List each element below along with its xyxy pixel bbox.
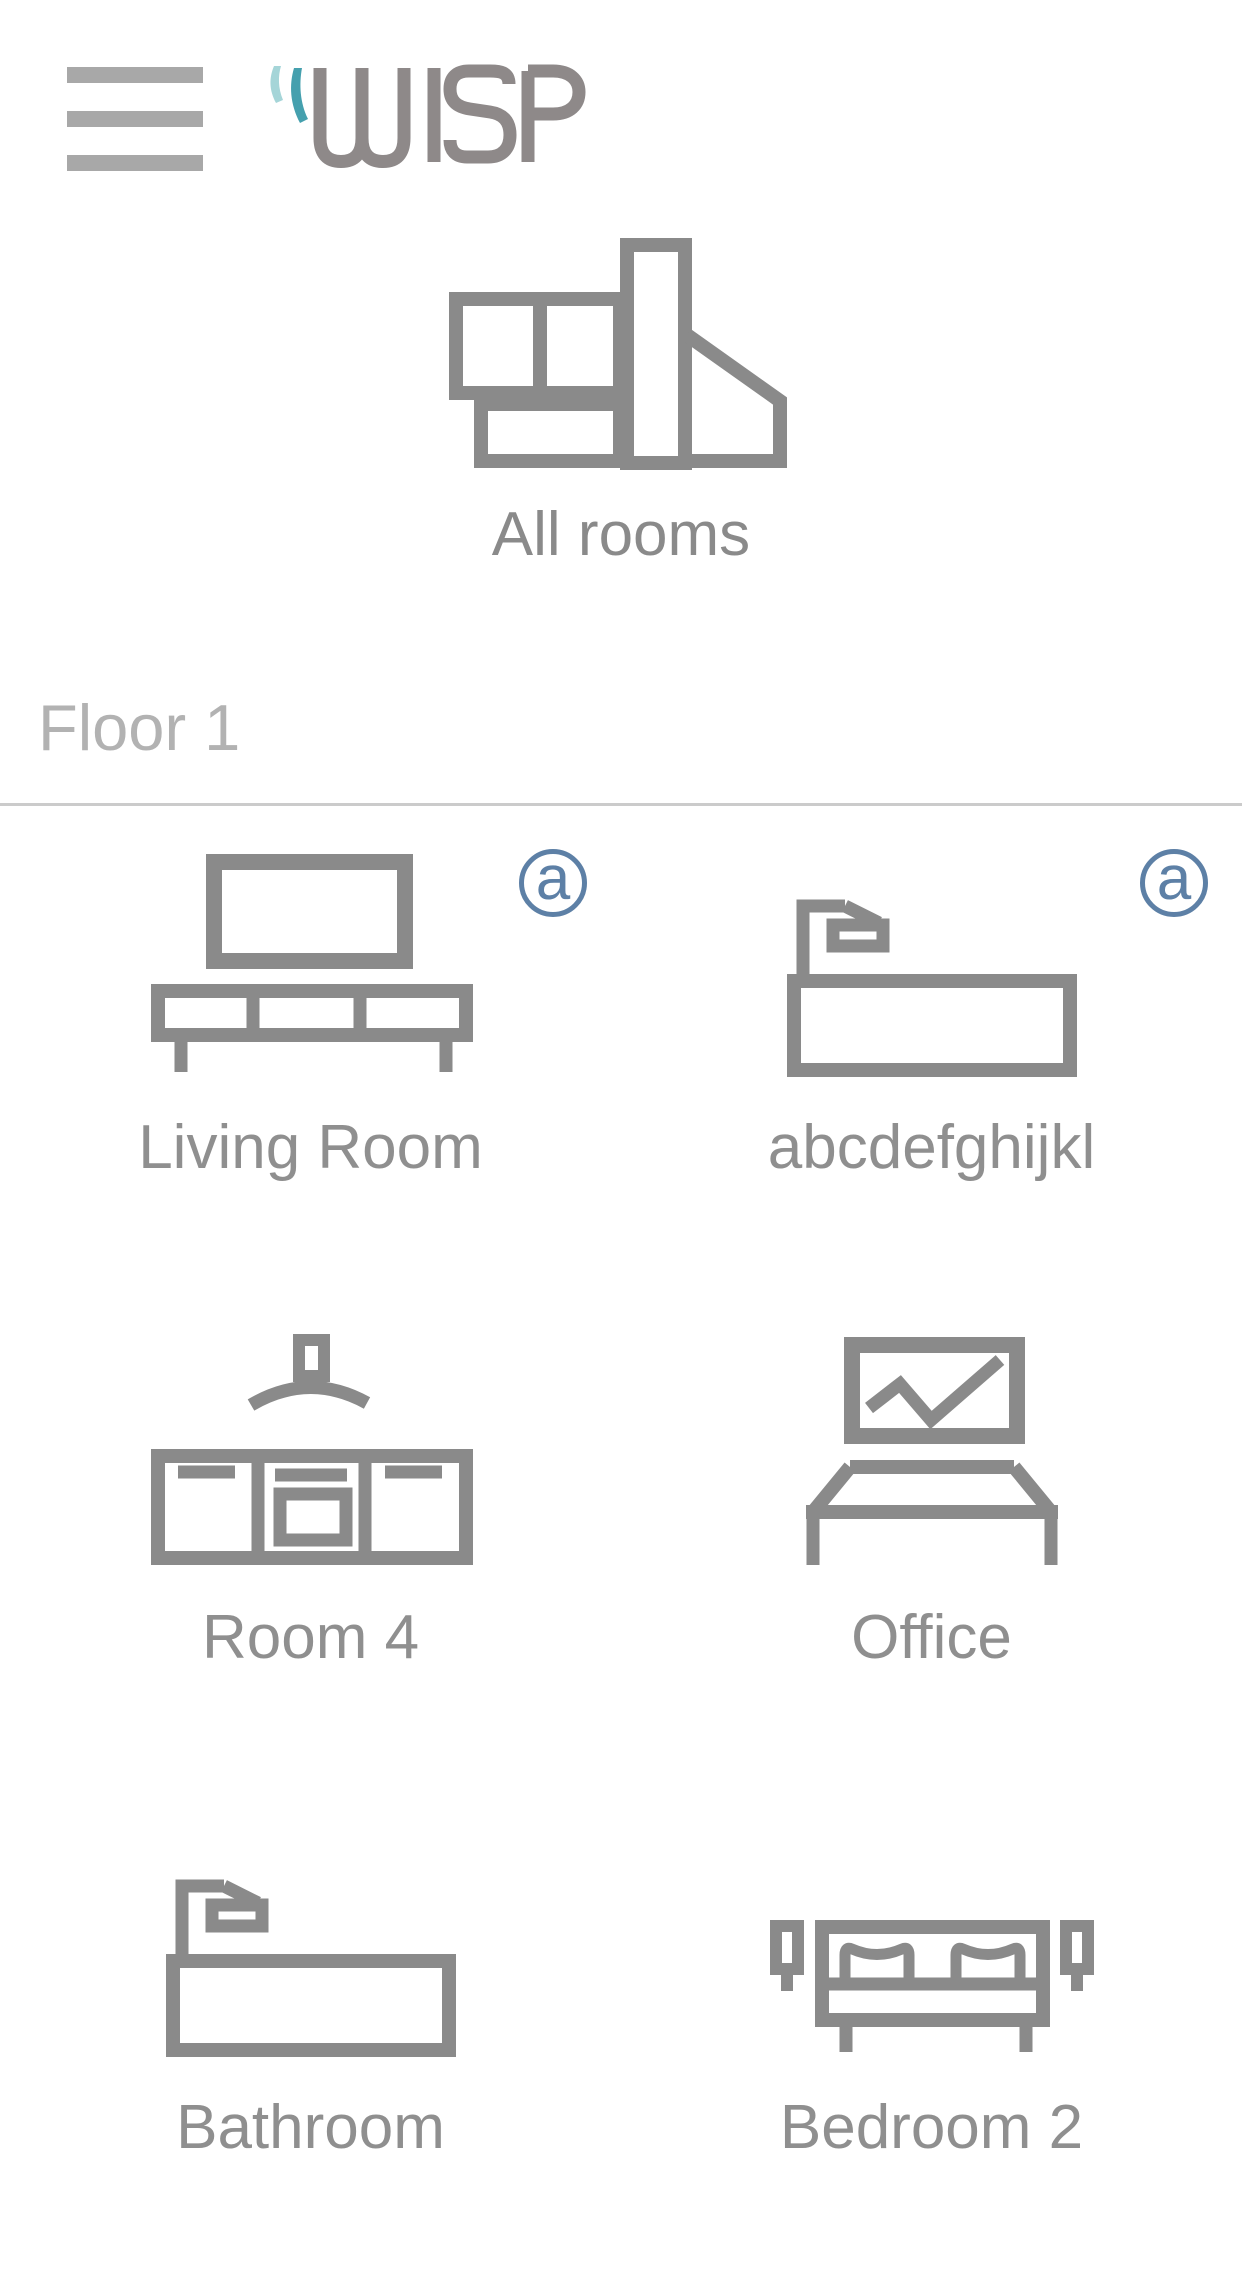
hamburger-icon bbox=[67, 111, 203, 127]
all-rooms-label: All rooms bbox=[492, 503, 750, 567]
room-tile-abcdefghijkl[interactable]: a abcdefghijkl bbox=[621, 820, 1242, 1310]
menu-button[interactable] bbox=[67, 67, 203, 171]
room-label: Office bbox=[851, 1606, 1012, 1670]
kitchen-icon bbox=[146, 1327, 476, 1567]
automation-badge: a bbox=[519, 849, 587, 917]
hamburger-icon bbox=[67, 155, 203, 171]
room-tile-office[interactable]: Office bbox=[621, 1310, 1242, 1800]
house-floorplan-icon bbox=[449, 235, 794, 475]
room-tile-bathroom[interactable]: Bathroom bbox=[0, 1800, 621, 2290]
rooms-grid: a Living Room a abcdefghijkl bbox=[0, 820, 1242, 2290]
all-rooms-item[interactable]: All rooms bbox=[0, 235, 1242, 567]
wisp-logo-icon bbox=[252, 58, 592, 173]
room-label: Bedroom 2 bbox=[780, 2096, 1083, 2160]
desk-monitor-icon bbox=[802, 1332, 1062, 1567]
wisp-logo bbox=[252, 58, 592, 173]
room-label: Room 4 bbox=[202, 1606, 419, 1670]
tv-stand-icon bbox=[146, 852, 476, 1077]
bathtub-icon bbox=[166, 1877, 456, 2057]
room-tile-living-room[interactable]: a Living Room bbox=[0, 820, 621, 1310]
automation-badge: a bbox=[1140, 849, 1208, 917]
bathtub-icon bbox=[787, 897, 1077, 1077]
room-label: abcdefghijkl bbox=[768, 1116, 1095, 1180]
hamburger-icon bbox=[67, 67, 203, 83]
room-tile-room-4[interactable]: Room 4 bbox=[0, 1310, 621, 1800]
room-label: Bathroom bbox=[176, 2096, 445, 2160]
floor-section-title: Floor 1 bbox=[38, 694, 240, 762]
room-tile-bedroom-2[interactable]: Bedroom 2 bbox=[621, 1800, 1242, 2290]
section-divider bbox=[0, 803, 1242, 806]
room-label: Living Room bbox=[138, 1116, 483, 1180]
bed-icon bbox=[767, 1917, 1097, 2057]
